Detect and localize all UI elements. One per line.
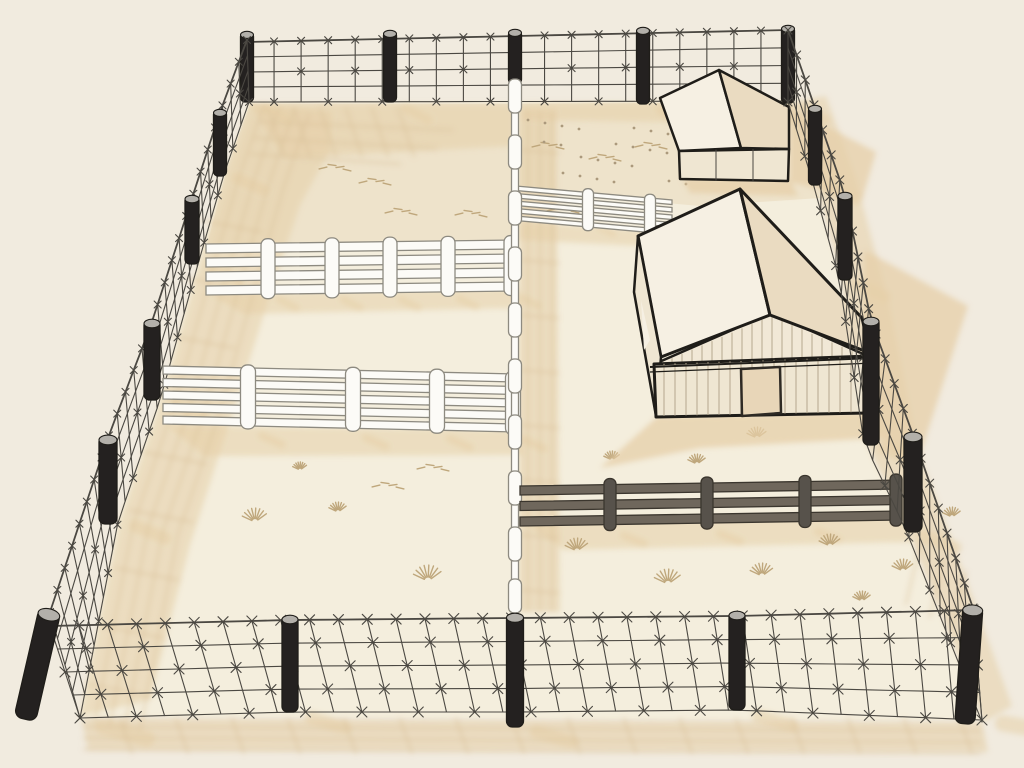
fence-post [384,30,397,102]
fence-post [185,195,199,264]
fence-post [729,611,745,710]
shed-front-wall [679,149,789,181]
fence-post [809,105,822,185]
divider-post [509,247,522,281]
divider-post [509,527,522,561]
divider-post [509,359,522,393]
rail-fence-post [346,367,361,431]
rail-fence-post [261,239,275,299]
barn-door [741,367,781,416]
ranch-illustration: Isometric line-art illustration of a lar… [0,0,1024,768]
divider-post [509,579,522,613]
fence-post [509,29,522,84]
rail-fence-post [325,238,339,298]
illustration-stage: Isometric line-art illustration of a lar… [0,0,1024,768]
rail-fence-post [604,479,616,531]
fence-post [863,317,879,445]
divider-post [509,415,522,449]
fence-post [282,615,298,712]
rail-fence-lower-left [163,365,521,435]
divider-post [509,135,522,169]
rail-fence-post [701,477,713,529]
fence-post [507,613,524,727]
fence-post [144,319,160,400]
divider-post [509,191,522,225]
fence-post [214,109,227,176]
rail-fence-post [430,369,445,433]
rail-fence-post [383,237,397,297]
fence-post [904,432,922,532]
rail-fence-post [241,365,256,429]
fence-post [637,27,650,104]
fence-post [99,435,117,524]
rail-fence-post [799,476,811,528]
rail-fence-post [583,189,594,231]
divider-post [509,79,522,113]
divider-post [509,303,522,337]
fence-post [838,192,852,280]
rail-fence-post [441,236,455,296]
